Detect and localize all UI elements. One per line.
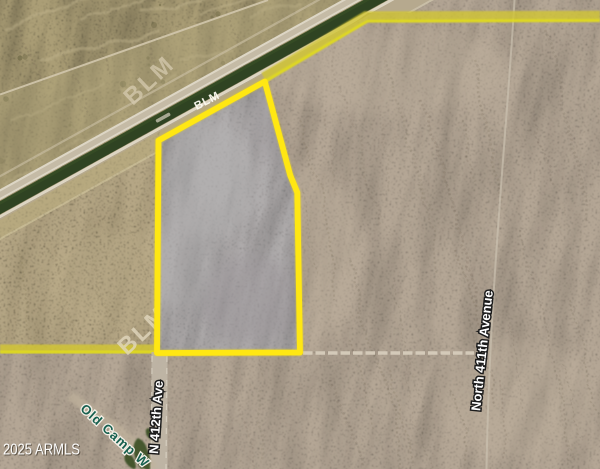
svg-text:2025 ARMLS: 2025 ARMLS <box>3 442 80 459</box>
